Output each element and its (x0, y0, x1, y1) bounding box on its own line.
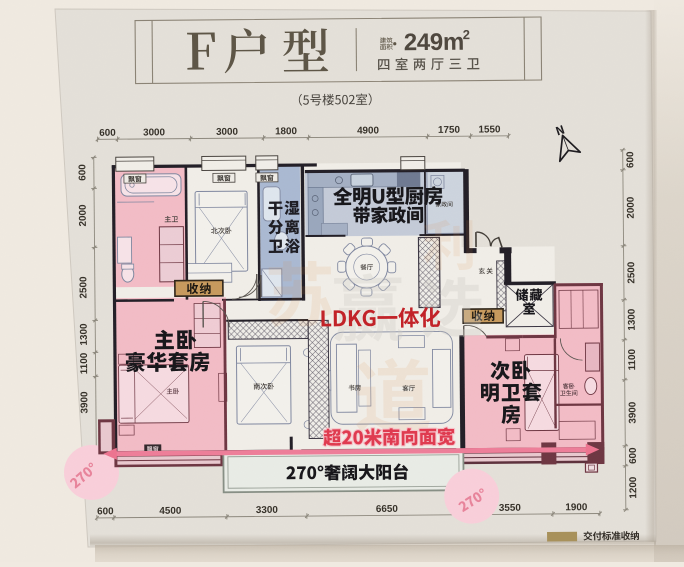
svg-text:3900: 3900 (79, 391, 90, 414)
svg-text:3000: 3000 (143, 127, 166, 138)
svg-text:3550: 3550 (499, 503, 522, 514)
svg-text:1100: 1100 (627, 348, 638, 370)
svg-text:2: 2 (463, 27, 470, 42)
svg-text:6650: 6650 (376, 504, 399, 515)
svg-text:1800: 1800 (275, 126, 298, 137)
svg-text:600: 600 (99, 128, 116, 139)
svg-text:600: 600 (77, 164, 88, 181)
svg-text:1900: 1900 (565, 502, 588, 513)
svg-text:4500: 4500 (159, 506, 182, 517)
svg-text:4900: 4900 (357, 125, 380, 136)
svg-text:3900: 3900 (627, 401, 638, 424)
svg-text:600: 600 (628, 447, 639, 464)
svg-text:1750: 1750 (438, 125, 461, 136)
svg-text:1300: 1300 (79, 323, 90, 346)
svg-text:600: 600 (625, 151, 636, 168)
svg-text:1300: 1300 (627, 308, 638, 331)
svg-text:2500: 2500 (78, 276, 89, 299)
svg-text:3000: 3000 (216, 127, 239, 138)
svg-text:2000: 2000 (626, 196, 637, 219)
svg-text:1550: 1550 (478, 124, 501, 135)
svg-text:2500: 2500 (626, 261, 637, 284)
svg-text:249m: 249m (404, 29, 464, 57)
svg-text:3300: 3300 (256, 505, 279, 516)
svg-text:600: 600 (97, 506, 114, 517)
svg-text:1100: 1100 (79, 352, 90, 374)
svg-text:2000: 2000 (78, 204, 89, 227)
svg-text:1200: 1200 (628, 476, 639, 499)
